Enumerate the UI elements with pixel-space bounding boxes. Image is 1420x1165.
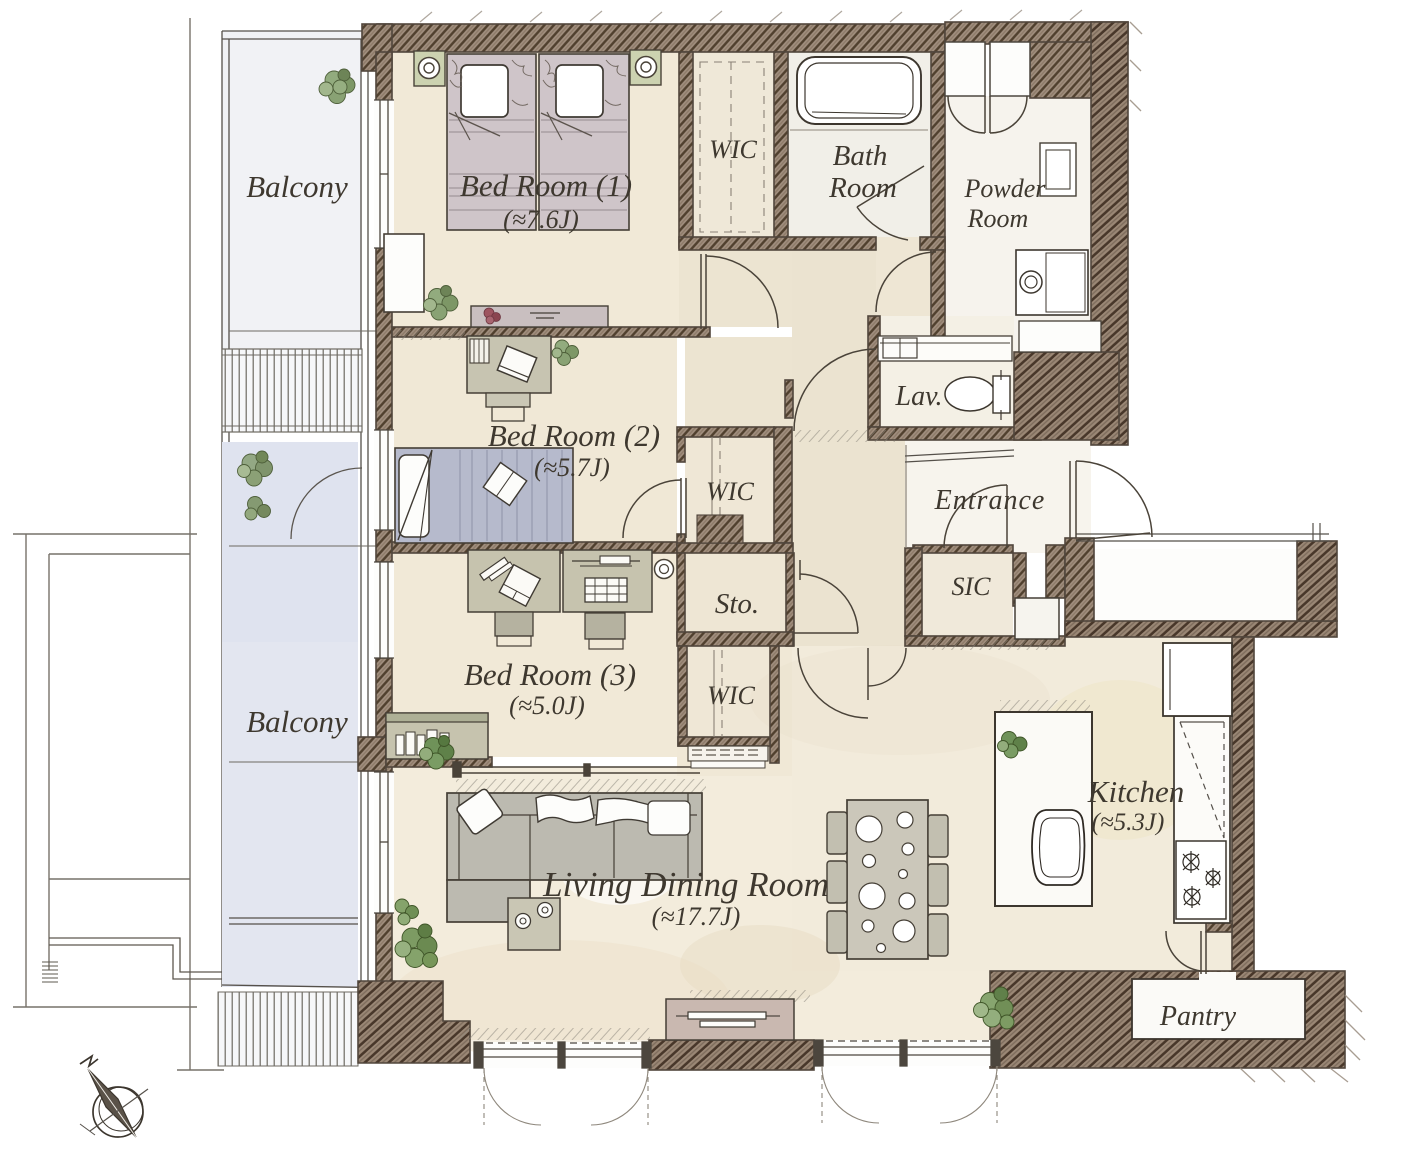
- svg-text:Bed Room (1): Bed Room (1): [460, 168, 632, 203]
- svg-text:Powder: Powder: [964, 174, 1047, 203]
- svg-text:Lav.: Lav.: [895, 381, 943, 412]
- svg-text:(≈17.7J): (≈17.7J): [652, 902, 741, 931]
- svg-text:Pantry: Pantry: [1159, 1001, 1237, 1032]
- svg-text:Sto.: Sto.: [715, 588, 759, 620]
- svg-text:Living Dining Room: Living Dining Room: [542, 865, 829, 904]
- svg-text:Room: Room: [828, 172, 897, 204]
- svg-text:Balcony: Balcony: [246, 704, 348, 739]
- svg-text:Bed Room (2): Bed Room (2): [488, 418, 660, 453]
- svg-text:SIC: SIC: [952, 572, 992, 601]
- svg-text:WIC: WIC: [709, 135, 757, 164]
- svg-text:Bath: Bath: [833, 140, 888, 172]
- svg-text:WIC: WIC: [706, 477, 754, 506]
- svg-text:Room: Room: [967, 204, 1029, 233]
- svg-text:WIC: WIC: [707, 681, 755, 710]
- svg-text:Bed Room (3): Bed Room (3): [464, 657, 636, 692]
- svg-text:Balcony: Balcony: [246, 169, 348, 204]
- svg-text:Entrance: Entrance: [934, 485, 1046, 516]
- svg-text:(≈5.0J): (≈5.0J): [509, 691, 585, 720]
- svg-text:(≈5.7J): (≈5.7J): [534, 453, 610, 482]
- svg-text:(≈7.6J): (≈7.6J): [503, 205, 579, 234]
- svg-text:Kitchen: Kitchen: [1087, 774, 1184, 809]
- svg-text:(≈5.3J): (≈5.3J): [1092, 809, 1165, 836]
